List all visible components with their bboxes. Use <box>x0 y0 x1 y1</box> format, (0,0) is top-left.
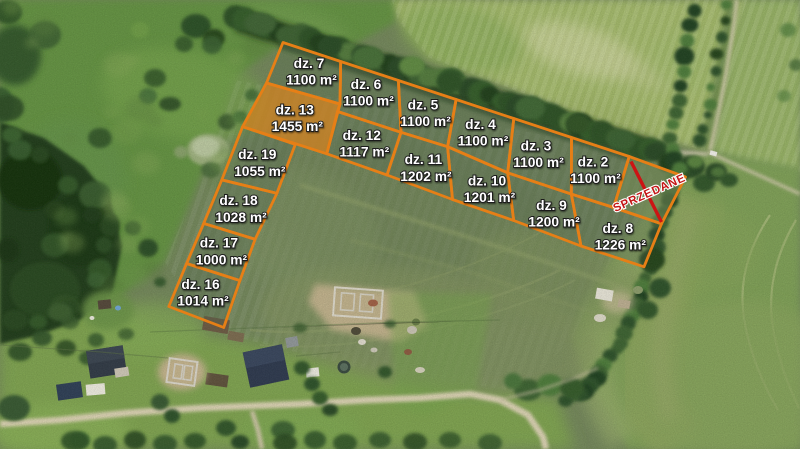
svg-text:dz. 7: dz. 7 <box>294 56 325 71</box>
svg-text:1028 m²: 1028 m² <box>215 210 267 225</box>
svg-text:dz. 6: dz. 6 <box>351 77 382 92</box>
svg-text:dz. 11: dz. 11 <box>405 152 443 167</box>
svg-text:1100 m²: 1100 m² <box>400 114 451 129</box>
svg-text:dz. 16: dz. 16 <box>181 277 220 292</box>
svg-text:dz. 13: dz. 13 <box>276 102 315 117</box>
svg-text:1000 m²: 1000 m² <box>196 253 248 268</box>
svg-text:dz. 4: dz. 4 <box>465 117 496 132</box>
svg-text:1202 m²: 1202 m² <box>400 169 452 184</box>
svg-text:1200 m²: 1200 m² <box>528 215 580 230</box>
svg-text:1055 m²: 1055 m² <box>234 164 286 179</box>
svg-text:dz. 19: dz. 19 <box>238 147 277 162</box>
svg-text:dz. 5: dz. 5 <box>408 97 439 112</box>
svg-text:1100 m²: 1100 m² <box>343 94 394 109</box>
svg-text:dz. 18: dz. 18 <box>219 193 258 208</box>
svg-text:dz. 8: dz. 8 <box>602 221 633 236</box>
svg-text:1014 m²: 1014 m² <box>177 294 229 309</box>
svg-text:dz. 17: dz. 17 <box>200 236 239 251</box>
svg-text:1100 m²: 1100 m² <box>570 171 621 186</box>
svg-text:dz. 2: dz. 2 <box>578 154 609 169</box>
svg-text:1226 m²: 1226 m² <box>595 238 647 253</box>
svg-text:dz. 12: dz. 12 <box>343 128 382 143</box>
svg-text:1100 m²: 1100 m² <box>458 134 509 149</box>
svg-text:dz. 10: dz. 10 <box>468 173 507 188</box>
svg-text:1117 m²: 1117 m² <box>339 145 389 160</box>
svg-text:1201 m²: 1201 m² <box>464 190 516 205</box>
svg-text:1100 m²: 1100 m² <box>513 155 564 170</box>
svg-text:dz. 3: dz. 3 <box>521 138 552 153</box>
svg-text:1455 m²: 1455 m² <box>272 119 324 134</box>
svg-text:dz. 9: dz. 9 <box>536 198 567 213</box>
svg-text:1100 m²: 1100 m² <box>286 73 337 88</box>
